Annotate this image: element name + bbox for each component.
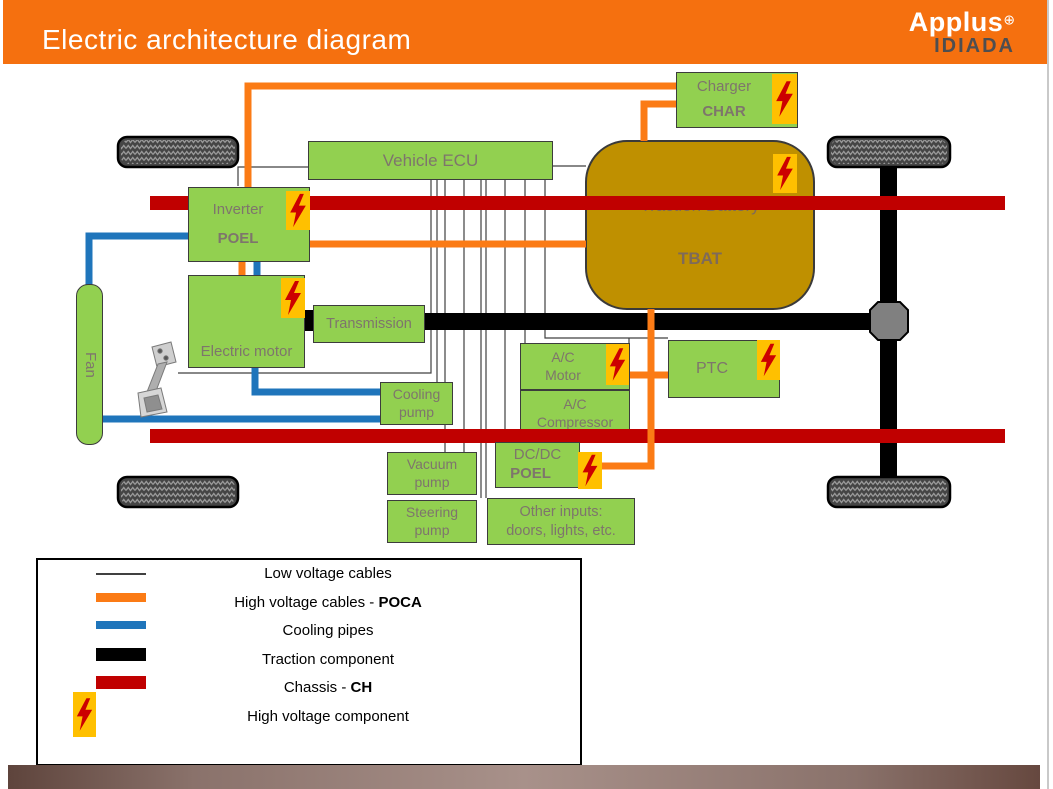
charger-code: CHAR [702, 103, 745, 122]
steering-pump-line2: pump [414, 522, 449, 540]
high-voltage-icon [772, 74, 797, 124]
dcdc-box: DC/DC POEL [495, 442, 580, 488]
steering-pump-box: Steering pump [387, 500, 477, 543]
cooling-pump-line1: Cooling [393, 386, 440, 404]
inverter-label: Inverter [213, 201, 264, 220]
ptc-label: PTC [696, 359, 728, 379]
logo-sub: IDIADA [934, 35, 1015, 57]
steering-pump-line1: Steering [406, 504, 458, 522]
vacuum-pump-box: Vacuum pump [387, 452, 477, 495]
high-voltage-cable-sample [96, 593, 146, 602]
logo-name: Applus [909, 7, 1004, 37]
slide-right-edge [1047, 0, 1049, 789]
chassis-sample [96, 676, 146, 689]
page-title: Electric architecture diagram [42, 24, 411, 56]
other-inputs-line2: doors, lights, etc. [506, 522, 616, 540]
ac-motor-line1: A/C [551, 349, 574, 367]
high-voltage-icon [606, 344, 629, 385]
vehicle-ecu-box: Vehicle ECU [308, 141, 553, 180]
cooling-pipe-sample [96, 621, 146, 629]
wheel-front-right [118, 477, 238, 507]
legend-label: Chassis - CH [148, 679, 508, 696]
high-voltage-icon [757, 340, 780, 380]
slide-footer-bar [8, 765, 1040, 789]
pedal-graphic [138, 342, 176, 417]
applus-idiada-logo: Applus⊕ IDIADA [909, 8, 1015, 57]
vacuum-pump-line1: Vacuum [407, 456, 457, 474]
legend-label: High voltage component [148, 708, 508, 725]
inverter-code: POEL [218, 230, 259, 249]
legend-label: High voltage cables - POCA [148, 594, 508, 611]
wheel-rear-right [828, 477, 950, 507]
dcdc-code: POEL [510, 465, 565, 484]
high-voltage-icon [286, 191, 310, 230]
dcdc-label: DC/DC [514, 446, 562, 465]
transmission-box: Transmission [313, 305, 425, 343]
charger-label: Charger [697, 78, 751, 97]
high-voltage-icon [73, 692, 96, 737]
legend-label: Low voltage cables [148, 565, 508, 582]
high-voltage-icon [773, 154, 797, 193]
logo-plus-icon: ⊕ [1003, 12, 1015, 28]
fan-label: Fan [80, 352, 99, 378]
traction-sample [96, 648, 146, 661]
legend-label: Traction component [148, 651, 508, 668]
high-voltage-icon [281, 278, 305, 318]
wheel-rear-left [828, 137, 950, 167]
legend: Low voltage cables High voltage cables -… [36, 558, 582, 766]
low-voltage-sample [96, 573, 146, 575]
high-voltage-icon [578, 452, 602, 489]
fan-box: Fan [76, 284, 103, 445]
vacuum-pump-line2: pump [414, 474, 449, 492]
cooling-pump-box: Cooling pump [380, 382, 453, 425]
cooling-pump-line2: pump [399, 404, 434, 422]
legend-label: Cooling pipes [148, 622, 508, 639]
electric-motor-label: Electric motor [201, 343, 293, 362]
transmission-label: Transmission [326, 315, 412, 333]
other-inputs-box: Other inputs: doors, lights, etc. [487, 498, 635, 545]
wheel-front-left [118, 137, 238, 167]
ac-motor-line2: Motor [545, 367, 581, 385]
other-inputs-line1: Other inputs: [519, 503, 602, 521]
differential-node [870, 302, 908, 340]
vehicle-ecu-label: Vehicle ECU [383, 150, 478, 171]
